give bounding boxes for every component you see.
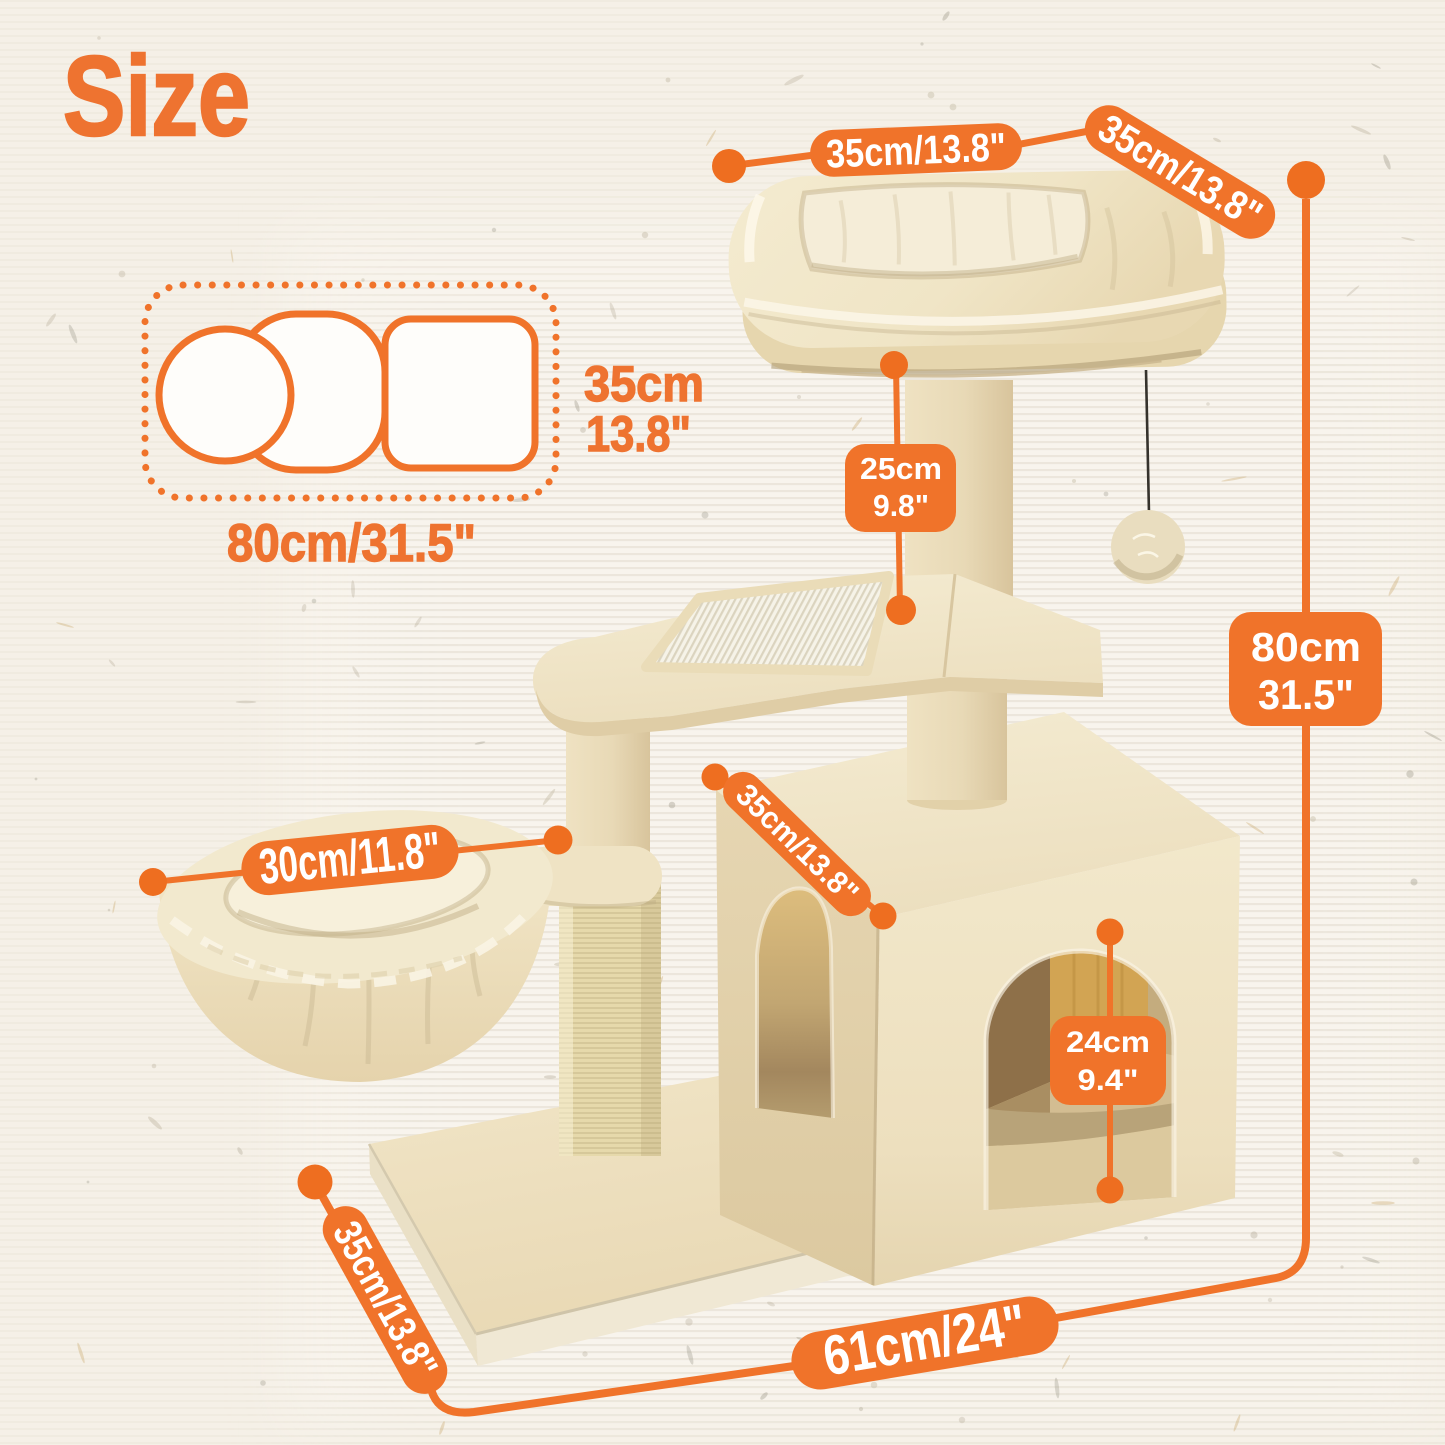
svg-text:25cm: 25cm xyxy=(860,451,942,486)
svg-text:35cm: 35cm xyxy=(584,356,704,412)
svg-text:Size: Size xyxy=(63,33,250,159)
svg-text:9.8": 9.8" xyxy=(873,488,929,523)
svg-text:13.8": 13.8" xyxy=(586,406,691,462)
svg-text:80cm/31.5": 80cm/31.5" xyxy=(227,514,476,573)
svg-text:35cm/13.8": 35cm/13.8" xyxy=(825,125,1007,176)
svg-text:31.5": 31.5" xyxy=(1258,671,1354,718)
svg-text:24cm: 24cm xyxy=(1066,1026,1150,1059)
svg-text:80cm: 80cm xyxy=(1251,624,1361,670)
svg-text:9.4": 9.4" xyxy=(1078,1064,1139,1097)
